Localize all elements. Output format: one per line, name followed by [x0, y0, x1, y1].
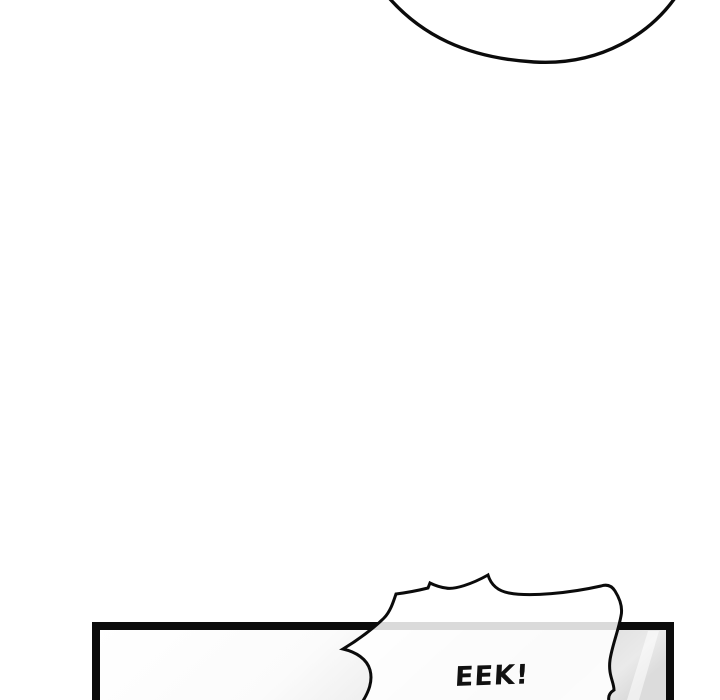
comic-page: EEK!: [0, 0, 720, 700]
shout-bubble-text: EEK!: [454, 659, 530, 693]
comic-artwork: [0, 0, 720, 700]
speech-bubble-top: [384, 0, 679, 62]
